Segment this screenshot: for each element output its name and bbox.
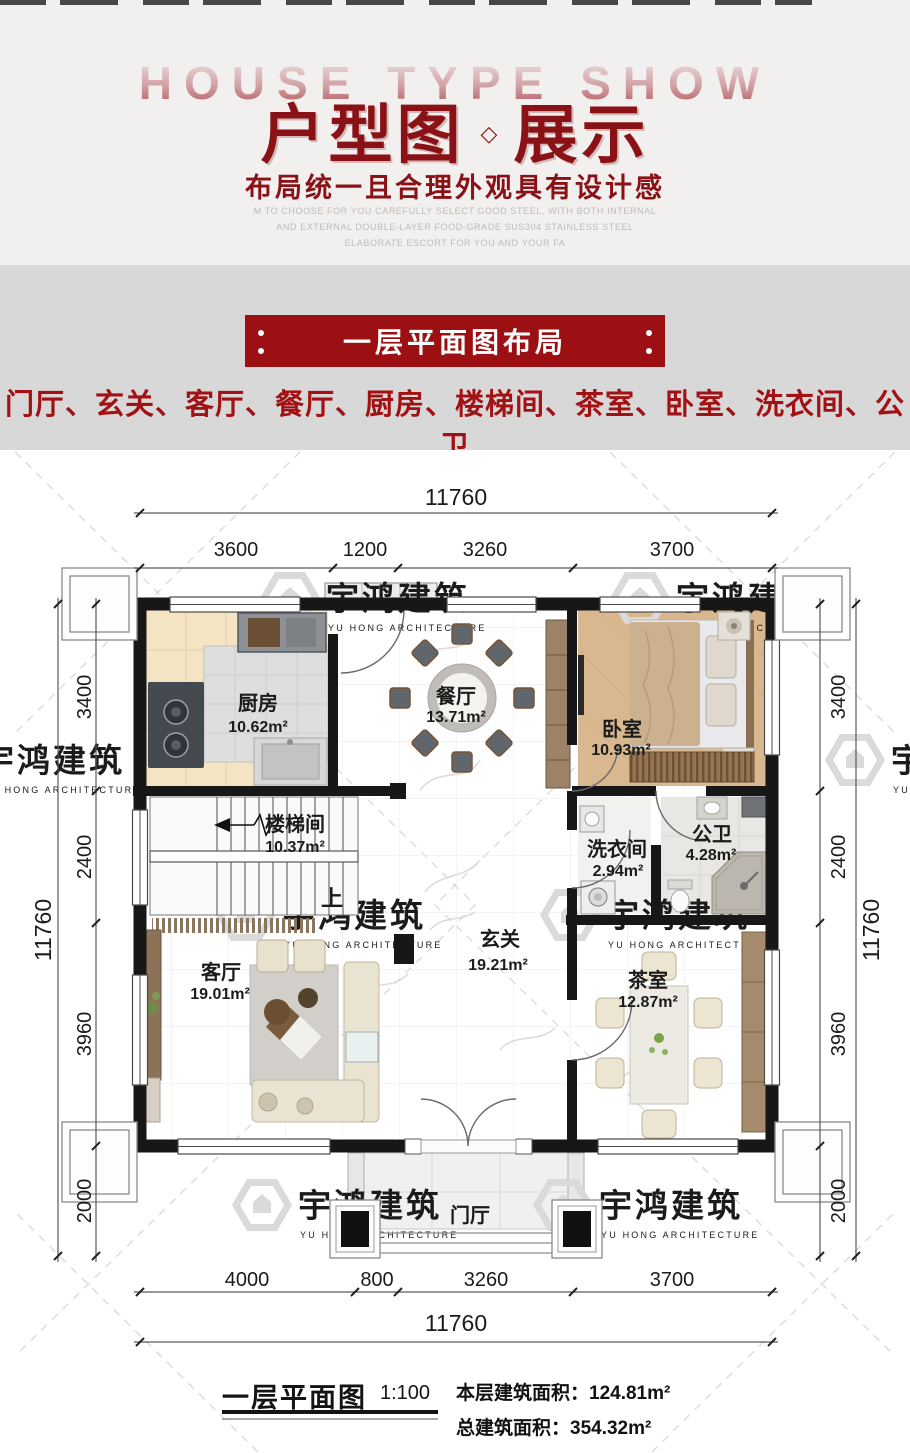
dim-left-seg: 3960 bbox=[74, 1012, 96, 1057]
banner-dot bbox=[258, 348, 264, 354]
dim-bottom-seg: 3700 bbox=[650, 1269, 695, 1291]
poster-page: HOUSE TYPE SHOW 户型图 ◇ 展示 布局统一且合理外观具有设计感 … bbox=[0, 0, 910, 1453]
room-area-living: 19.01m² bbox=[190, 986, 250, 1003]
main-title: 户型图 ◇ 展示 bbox=[0, 84, 910, 176]
dim-right-seg: 2400 bbox=[828, 835, 850, 880]
caption-underline-thick bbox=[222, 1410, 438, 1414]
diamond-icon: ◇ bbox=[481, 121, 498, 147]
main-title-left: 户型图 bbox=[261, 84, 465, 176]
room-label-dining: 餐厅 bbox=[436, 684, 476, 708]
dim-right-seg: 2000 bbox=[828, 1179, 850, 1224]
room-area-bedroom: 10.93m² bbox=[591, 742, 651, 759]
room-area-kitchen: 10.62m² bbox=[228, 719, 288, 736]
english-description: M TO CHOOSE FOR YOU CAREFULLY SELECT GOO… bbox=[0, 203, 910, 251]
header-section: HOUSE TYPE SHOW 户型图 ◇ 展示 布局统一且合理外观具有设计感 … bbox=[0, 0, 910, 265]
caption-section: 一层平面图 1:100 本层建筑面积：124.81m² 总建筑面积：354.32… bbox=[0, 1368, 910, 1453]
room-label-tea: 茶室 bbox=[628, 968, 668, 992]
room-label-foyer: 玄关 bbox=[480, 927, 520, 951]
room-label-porch: 门厅 bbox=[450, 1203, 490, 1227]
dim-left-total: 11760 bbox=[30, 899, 56, 961]
dim-top-seg: 3600 bbox=[214, 539, 259, 561]
room-area-laundry: 2.94m² bbox=[593, 863, 644, 880]
section-banner: 一层平面图布局 bbox=[245, 315, 665, 367]
dim-top-seg: 3260 bbox=[463, 539, 508, 561]
dim-bottom-total: 11760 bbox=[425, 1310, 487, 1336]
room-area-bath: 4.28m² bbox=[686, 847, 737, 864]
room-label-living: 客厅 bbox=[200, 960, 241, 984]
top-edge-dashes bbox=[0, 0, 812, 5]
stairs bbox=[150, 797, 358, 933]
dim-right-seg: 3960 bbox=[828, 1012, 850, 1057]
room-area-tea: 12.87m² bbox=[618, 994, 678, 1011]
english-line: M TO CHOOSE FOR YOU CAREFULLY SELECT GOO… bbox=[0, 203, 910, 219]
room-label-bedroom: 卧室 bbox=[602, 717, 642, 741]
banner-dot bbox=[646, 330, 652, 336]
dim-bottom-seg: 800 bbox=[360, 1269, 393, 1291]
section-banner-label: 一层平面图布局 bbox=[343, 321, 567, 361]
room-label-bath: 公卫 bbox=[692, 823, 732, 846]
stair-up-label: 上 bbox=[321, 886, 343, 911]
room-label-kitchen: 厨房 bbox=[238, 691, 278, 715]
room-area-foyer: 19.21m² bbox=[468, 957, 528, 974]
room-label-laundry: 洗衣间 bbox=[587, 837, 647, 861]
structural-column bbox=[394, 934, 414, 964]
subtitle: 布局统一且合理外观具有设计感 bbox=[0, 166, 910, 205]
floor-area-text: 本层建筑面积：124.81m² bbox=[456, 1378, 670, 1405]
english-line: AND EXTERNAL DOUBLE-LAYER FOOD-GRADE SUS… bbox=[0, 219, 910, 235]
dim-bottom-seg: 4000 bbox=[225, 1269, 270, 1291]
dim-right-seg: 3400 bbox=[828, 675, 850, 720]
section-band: 一层平面图布局 门厅、玄关、客厅、餐厅、厨房、楼梯间、茶室、卧室、洗衣间、公卫 bbox=[0, 265, 910, 457]
caption-scale: 1:100 bbox=[380, 1382, 430, 1405]
total-area-text: 总建筑面积：354.32m² bbox=[456, 1413, 651, 1440]
banner-dot bbox=[258, 330, 264, 336]
main-title-right: 展示 bbox=[513, 84, 649, 176]
dim-left-seg: 2000 bbox=[74, 1179, 96, 1224]
room-area-stair: 10.37m² bbox=[265, 839, 325, 856]
dim-left-seg: 3400 bbox=[74, 675, 96, 720]
dim-bottom-seg: 3260 bbox=[464, 1269, 509, 1291]
stair-rail bbox=[152, 918, 315, 933]
room-area-dining: 13.71m² bbox=[426, 709, 486, 726]
english-line: ELABORATE ESCORT FOR YOU AND YOUR FA bbox=[0, 235, 910, 251]
dim-right-total: 11760 bbox=[858, 899, 884, 961]
room-label-stair: 楼梯间 bbox=[265, 812, 325, 836]
dim-top-seg: 3700 bbox=[650, 539, 695, 561]
dim-left-seg: 2400 bbox=[74, 835, 96, 880]
dim-top-total: 11760 bbox=[425, 484, 487, 510]
dim-top-seg: 1200 bbox=[343, 539, 388, 561]
caption-underline-thin bbox=[222, 1418, 438, 1420]
banner-dot bbox=[646, 348, 652, 354]
floor-plan: 宇鸿建筑 YU HONG ARCHITECTURE bbox=[0, 450, 910, 1453]
